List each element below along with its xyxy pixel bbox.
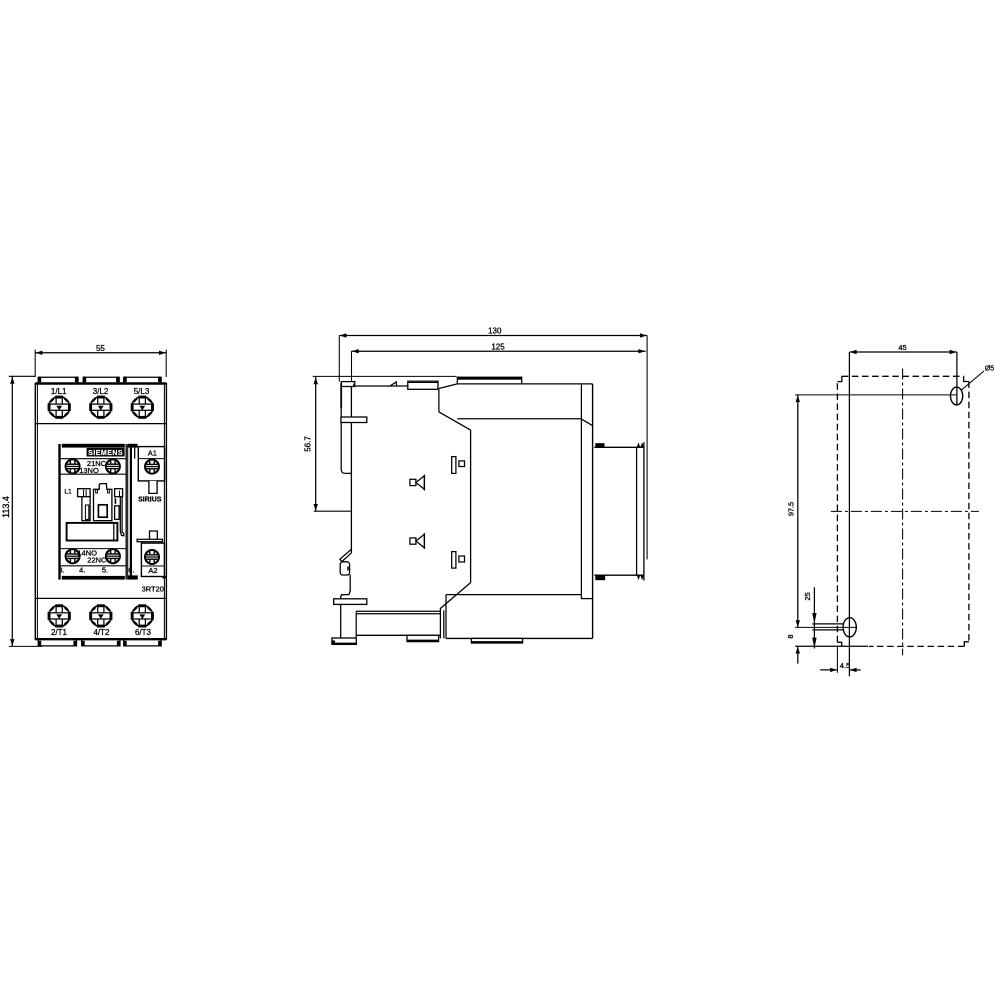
svg-text:45: 45 (898, 343, 906, 352)
svg-text:2/T1: 2/T1 (51, 628, 68, 637)
svg-text:4.: 4. (79, 566, 85, 575)
svg-text:22NC: 22NC (87, 555, 107, 564)
svg-text:6.: 6. (128, 566, 134, 575)
svg-text:3/L2: 3/L2 (93, 387, 109, 396)
svg-text:A2: A2 (148, 566, 157, 575)
svg-text:6/T3: 6/T3 (135, 628, 152, 637)
svg-text:25: 25 (803, 592, 812, 600)
svg-text:SIEMENS: SIEMENS (88, 450, 123, 457)
svg-text:4.5: 4.5 (840, 661, 850, 670)
svg-text:56.7: 56.7 (304, 436, 313, 452)
svg-text:130: 130 (488, 327, 502, 336)
svg-text:3.: 3. (58, 566, 64, 575)
svg-text:3RT20: 3RT20 (142, 585, 164, 594)
svg-text:13NO: 13NO (79, 466, 99, 475)
svg-text:1/L1: 1/L1 (51, 387, 67, 396)
svg-text:4/T2: 4/T2 (93, 628, 110, 637)
svg-text:5.: 5. (102, 566, 108, 575)
svg-text:Ø5: Ø5 (985, 366, 994, 373)
svg-text:L1: L1 (64, 488, 72, 495)
svg-text:97.5: 97.5 (786, 502, 795, 516)
svg-text:A1: A1 (148, 449, 157, 458)
svg-text:5/L3: 5/L3 (134, 387, 150, 396)
svg-text:SIRIUS: SIRIUS (138, 497, 162, 504)
svg-text:113.4: 113.4 (1, 496, 11, 518)
svg-text:125: 125 (491, 342, 505, 351)
svg-text:55: 55 (96, 344, 105, 353)
svg-text:8: 8 (786, 635, 795, 639)
